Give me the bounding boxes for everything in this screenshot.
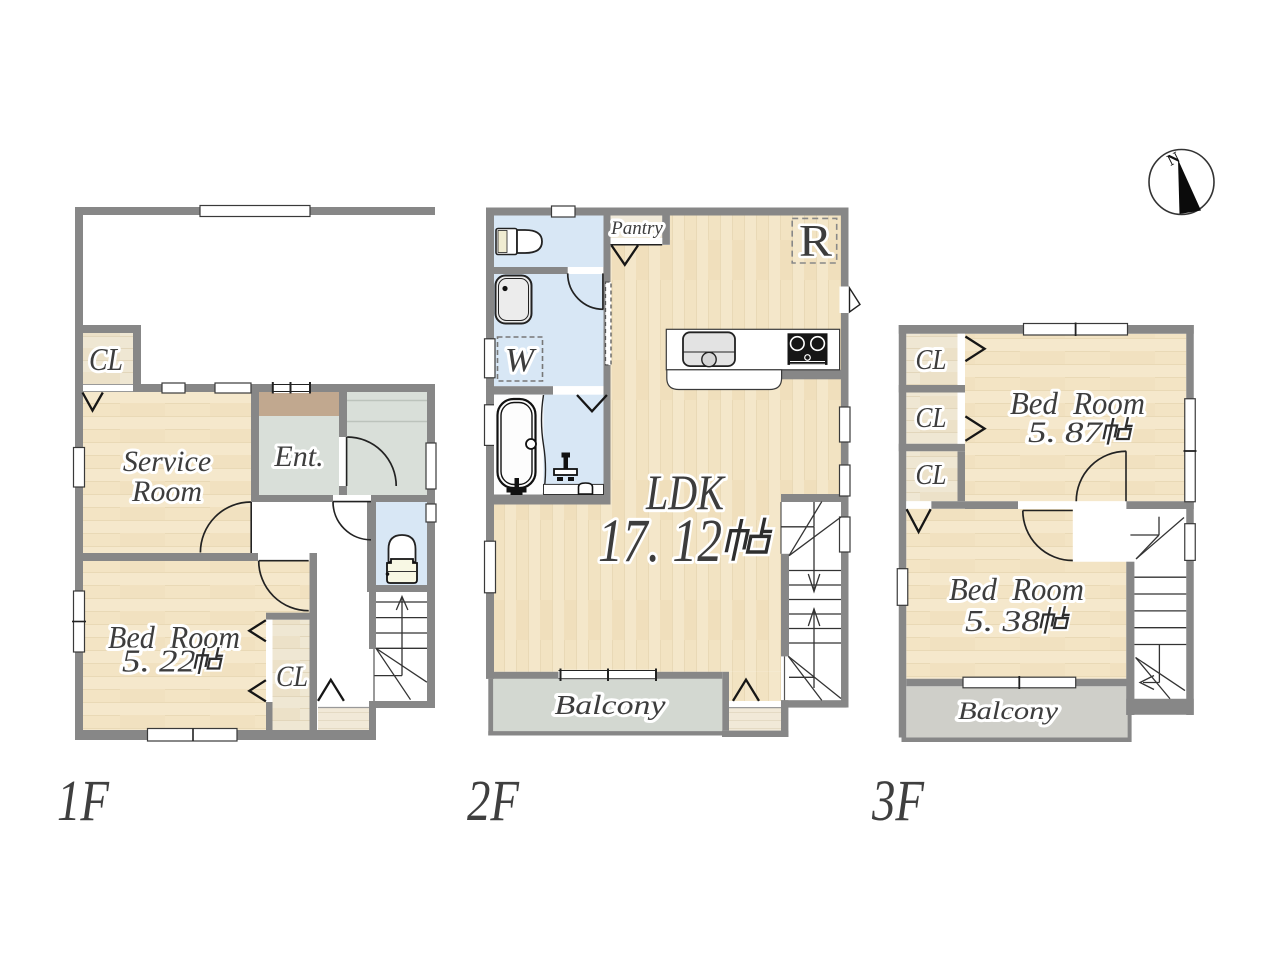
svg-text:5. 38: 5. 38 — [965, 603, 1041, 638]
svg-text:Balcony: Balcony — [958, 698, 1059, 725]
svg-text:5. 22: 5. 22 — [122, 643, 196, 679]
svg-text:R: R — [799, 215, 832, 266]
svg-text:CL: CL — [916, 344, 947, 376]
svg-text:W: W — [505, 342, 537, 379]
svg-text:CL: CL — [89, 341, 123, 377]
svg-text:CL: CL — [916, 402, 947, 434]
svg-text:1F: 1F — [57, 768, 109, 833]
svg-text:Room: Room — [131, 475, 202, 508]
svg-text:3F: 3F — [871, 768, 924, 833]
svg-text:Pantry: Pantry — [610, 218, 663, 239]
svg-text:Service: Service — [123, 445, 211, 478]
svg-text:Balcony: Balcony — [555, 690, 666, 720]
svg-text:2F: 2F — [467, 768, 519, 833]
svg-text:5. 87: 5. 87 — [1028, 416, 1104, 449]
svg-text:CL: CL — [916, 459, 947, 491]
svg-text:Bed Room: Bed Room — [949, 571, 1084, 607]
svg-text:Ent.: Ent. — [273, 440, 323, 473]
svg-text:CL: CL — [276, 660, 308, 693]
svg-text:17. 12: 17. 12 — [598, 508, 722, 575]
